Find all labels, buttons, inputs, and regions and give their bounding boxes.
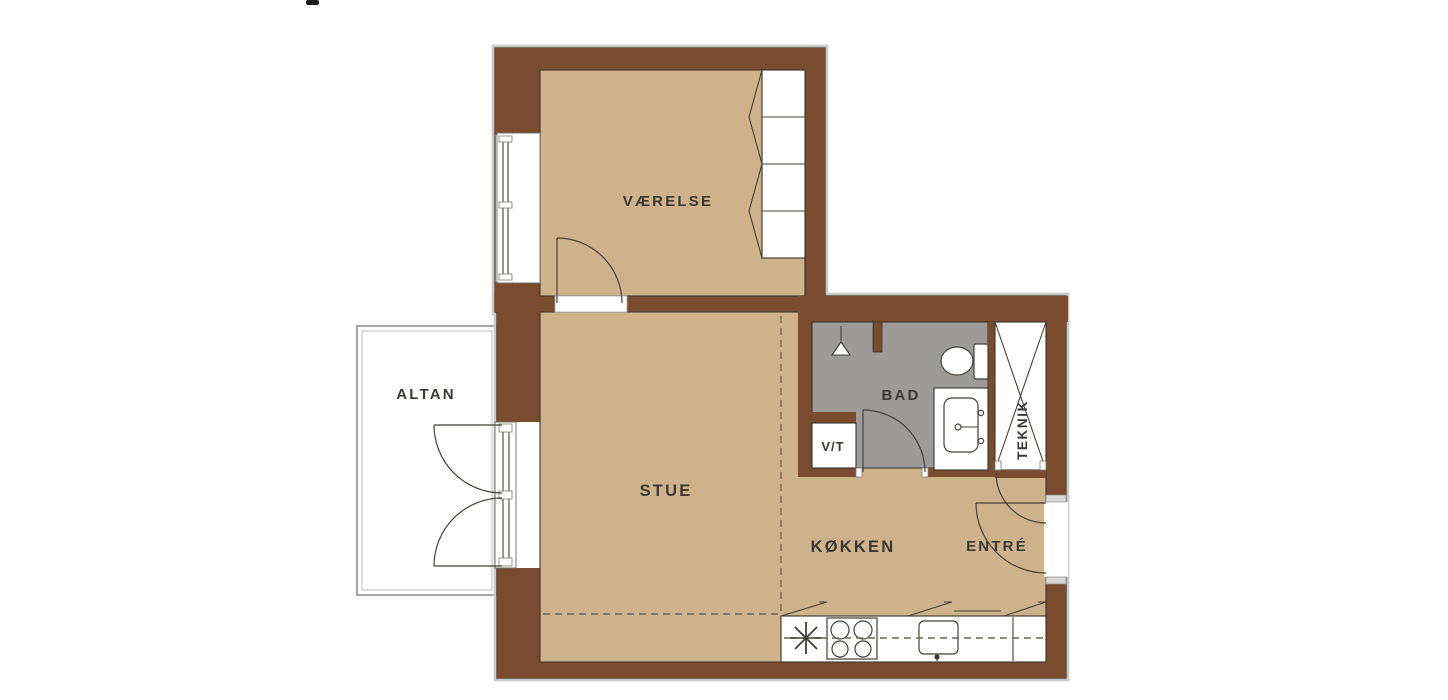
room-label-teknik: TEKNIK: [1015, 400, 1030, 460]
room-label-entre: ENTRÉ: [966, 538, 1028, 555]
living-left-wall-lower: [497, 568, 540, 678]
floor-plan-page: VÆRELSE ALTAN STUE BAD V/T TEKNIK KØKKEN…: [0, 0, 1448, 700]
balcony-hinge-bottom: [499, 558, 512, 566]
burner-3: [832, 641, 848, 657]
teknik-sill: [995, 470, 1046, 478]
bad-door-stop-left: [856, 468, 862, 477]
bedroom-door-threshold: [555, 296, 627, 312]
room-label-koekken: KØKKEN: [811, 538, 896, 556]
cropped-artifact: [306, 0, 319, 5]
entrance-jamb-top: [1046, 495, 1066, 502]
bedroom-bottom-wall-right: [627, 296, 805, 312]
lower-wing-top-wall: [805, 296, 1068, 322]
bad-teknik-divider-wall: [988, 322, 995, 477]
bedroom-top-wall: [495, 48, 825, 70]
faucet-knob-bottom: [978, 438, 983, 443]
teknik-door-stop-left: [995, 461, 1001, 470]
bad-bottom-wall-left: [798, 468, 862, 477]
bedroom-bottom-wall-left: [540, 296, 555, 312]
entrance-opening: [1044, 502, 1068, 577]
vt-top-wall: [798, 412, 856, 423]
faucet-knob-top: [978, 410, 983, 415]
bedroom-right-wall: [805, 48, 825, 303]
room-label-vt: V/T: [821, 439, 844, 454]
burner-2: [854, 621, 872, 639]
shower-partition-stub: [873, 322, 882, 352]
window-frame-tick-top: [499, 136, 512, 142]
burner-4: [855, 641, 871, 657]
bedroom-left-wall-upper: [495, 48, 540, 135]
faucet-drain: [955, 424, 961, 430]
teknik-door-stop-right: [1040, 461, 1046, 470]
window-frame-tick-mid: [499, 202, 512, 208]
room-label-vaerelse: VÆRELSE: [623, 193, 713, 210]
toilet-bowl: [941, 347, 973, 375]
burner-1: [831, 621, 849, 639]
room-label-altan: ALTAN: [396, 386, 456, 403]
living-left-wall-upper: [497, 296, 540, 422]
floor-plan-svg: VÆRELSE ALTAN STUE BAD V/T TEKNIK KØKKEN…: [0, 0, 1448, 700]
window-frame-tick-bottom: [499, 274, 512, 280]
room-label-stue: STUE: [640, 482, 693, 500]
kitchen-faucet: [934, 654, 939, 659]
room-label-bad: BAD: [881, 387, 920, 404]
entrance-jamb-bottom: [1046, 577, 1066, 584]
sink-basin: [944, 398, 978, 452]
bottom-wall: [497, 662, 1066, 678]
right-wall-upper: [1046, 296, 1066, 502]
balcony-outline: [357, 326, 497, 595]
toilet-tank: [974, 344, 988, 379]
counter-top: [781, 616, 1046, 662]
bath-sink-icon: [934, 388, 988, 470]
bathroom-left-wall: [798, 296, 812, 477]
bedroom-window: [497, 133, 540, 283]
balcony: [357, 326, 497, 595]
